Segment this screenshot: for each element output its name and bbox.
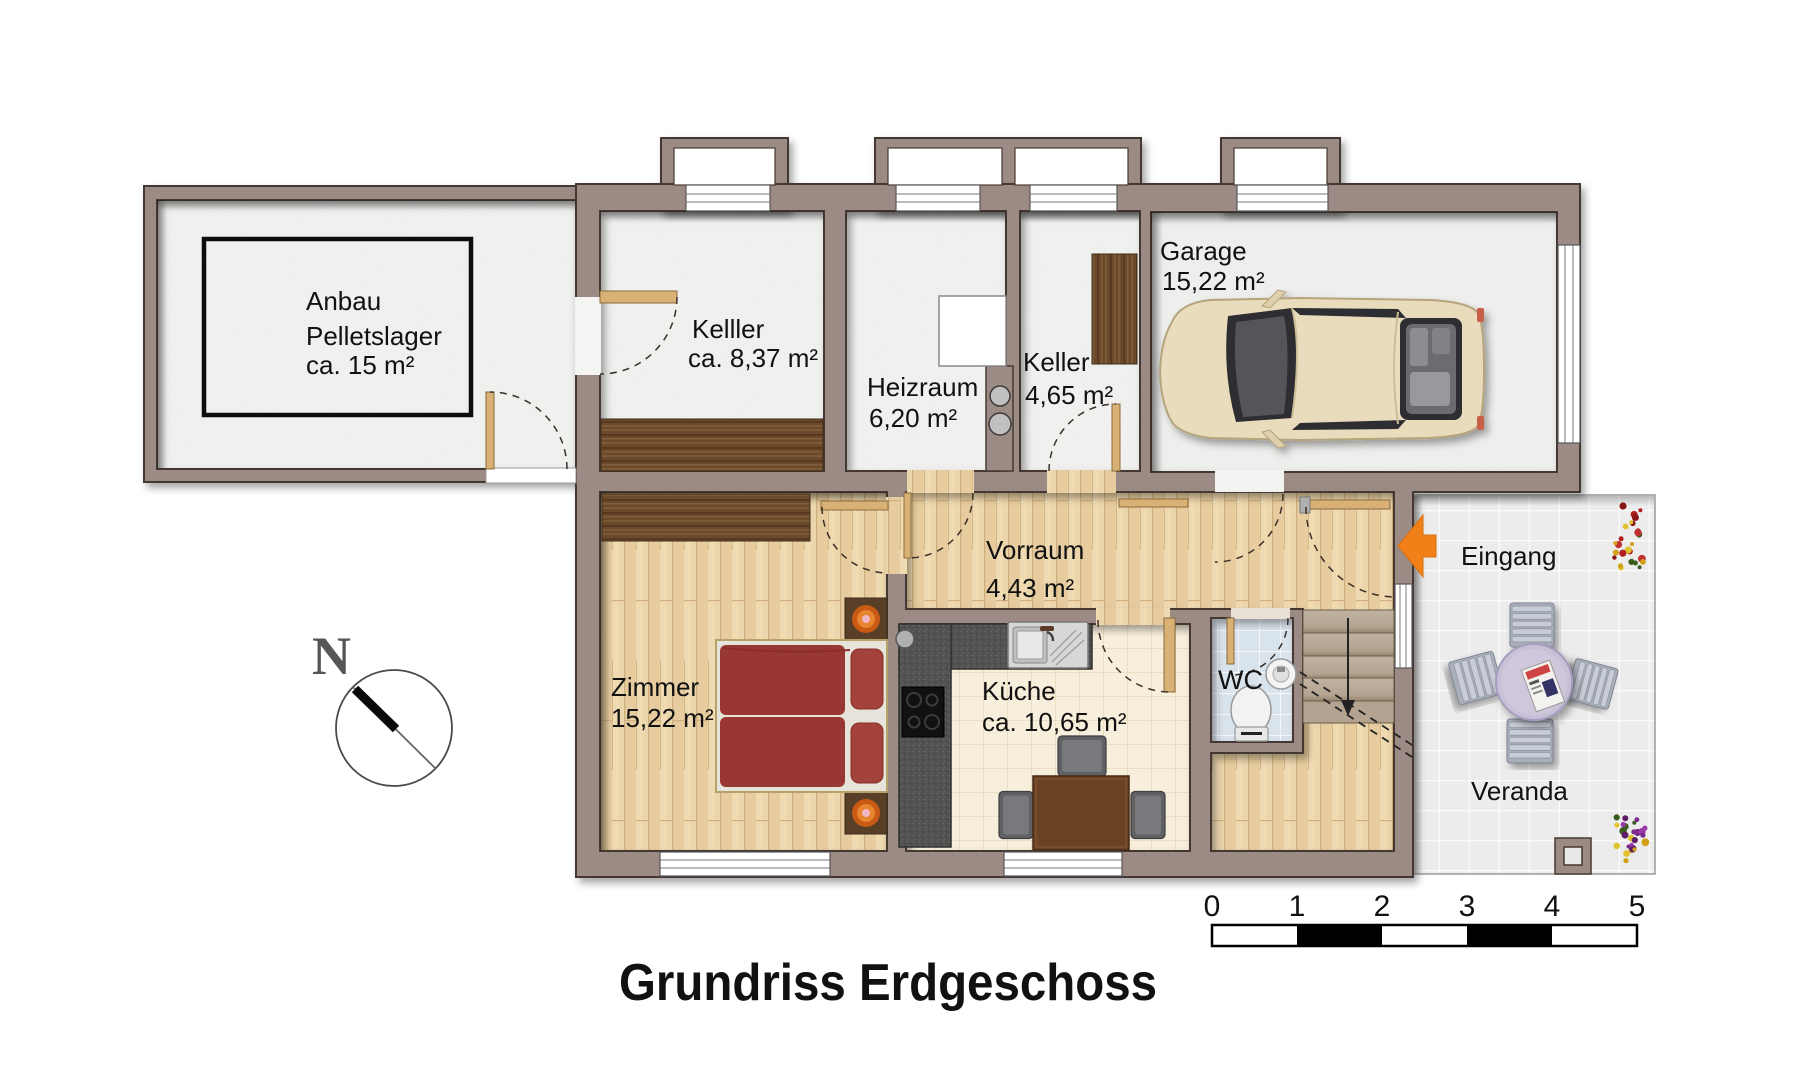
svg-text:3: 3 <box>1459 890 1476 923</box>
svg-text:0: 0 <box>1204 890 1221 923</box>
svg-text:1: 1 <box>1289 890 1306 923</box>
svg-text:Küche: Küche <box>982 676 1056 706</box>
svg-text:5: 5 <box>1629 890 1646 923</box>
svg-text:Heizraum: Heizraum <box>867 372 978 402</box>
svg-text:ca. 8,37 m²: ca. 8,37 m² <box>688 343 818 373</box>
svg-text:Anbau: Anbau <box>306 286 381 316</box>
svg-text:N: N <box>312 626 351 686</box>
svg-text:15,22 m²: 15,22 m² <box>1162 266 1265 296</box>
svg-text:WC: WC <box>1218 665 1263 695</box>
svg-text:Vorraum: Vorraum <box>986 535 1084 565</box>
svg-text:4,43 m²: 4,43 m² <box>986 573 1074 603</box>
svg-text:6,20 m²: 6,20 m² <box>869 403 957 433</box>
svg-text:Eingang: Eingang <box>1461 541 1556 571</box>
svg-text:4: 4 <box>1544 890 1561 923</box>
svg-text:Zimmer: Zimmer <box>611 672 699 702</box>
svg-text:Grundriss Erdgeschoss: Grundriss Erdgeschoss <box>619 954 1157 1012</box>
svg-text:Garage: Garage <box>1160 236 1247 266</box>
svg-text:ca. 15 m²: ca. 15 m² <box>306 350 415 380</box>
svg-text:15,22 m²: 15,22 m² <box>611 703 714 733</box>
svg-text:ca. 10,65 m²: ca. 10,65 m² <box>982 707 1127 737</box>
svg-text:Veranda: Veranda <box>1471 776 1568 806</box>
svg-text:4,65 m²: 4,65 m² <box>1025 380 1113 410</box>
svg-text:Keller: Keller <box>1023 347 1090 377</box>
svg-text:2: 2 <box>1374 890 1391 923</box>
svg-text:Pelletslager: Pelletslager <box>306 321 442 351</box>
svg-text:Kelller: Kelller <box>692 314 765 344</box>
